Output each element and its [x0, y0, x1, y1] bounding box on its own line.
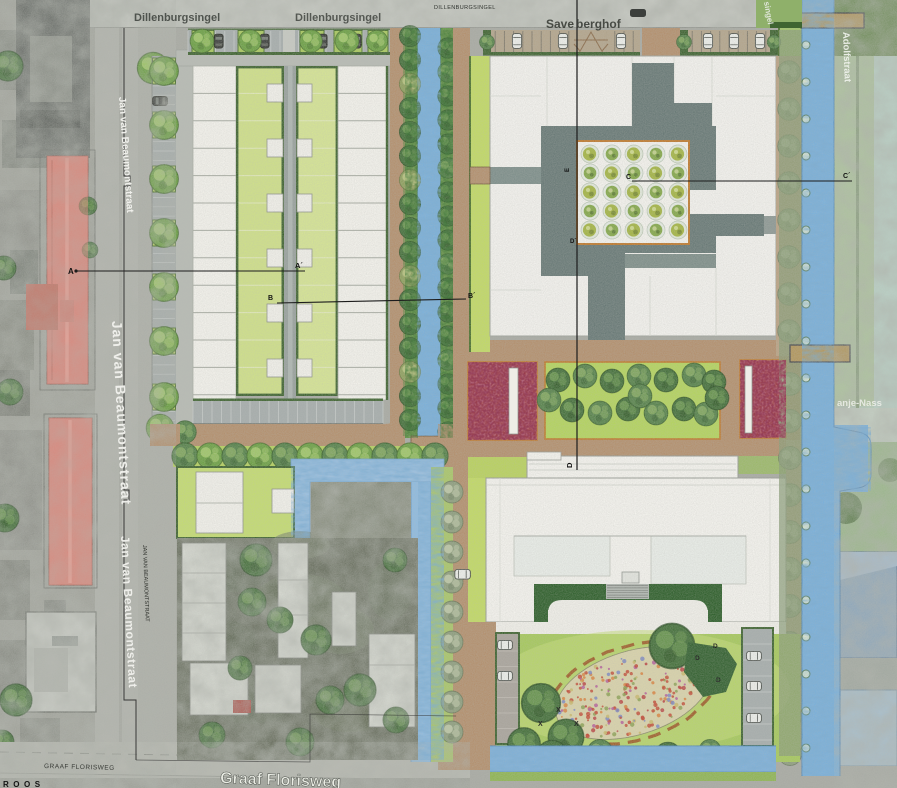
svg-text:E: E: [565, 168, 571, 172]
svg-text:anje-Nass: anje-Nass: [837, 398, 882, 409]
svg-text:ROOS: ROOS: [3, 780, 45, 788]
svg-text:DILLENBURGSINGEL: DILLENBURGSINGEL: [434, 5, 496, 11]
svg-text:B: B: [268, 295, 273, 302]
svg-text:Graaf Florisweg: Graaf Florisweg: [220, 770, 341, 788]
svg-text:C: C: [626, 174, 631, 181]
svg-text:Dillenburgsingel: Dillenburgsingel: [295, 12, 381, 24]
svg-text:B´: B´: [468, 293, 476, 300]
svg-text:Dillenburgsingel: Dillenburgsingel: [134, 12, 220, 24]
svg-text:A: A: [68, 267, 74, 276]
svg-text:Adolfstraat: Adolfstraat: [840, 32, 853, 83]
svg-text:C´: C´: [843, 173, 851, 180]
svg-text:Saveberghof: Saveberghof: [546, 17, 622, 31]
svg-text:A´: A´: [295, 261, 303, 270]
svg-text:D: D: [565, 462, 574, 468]
svg-text:D´: D´: [570, 239, 576, 245]
